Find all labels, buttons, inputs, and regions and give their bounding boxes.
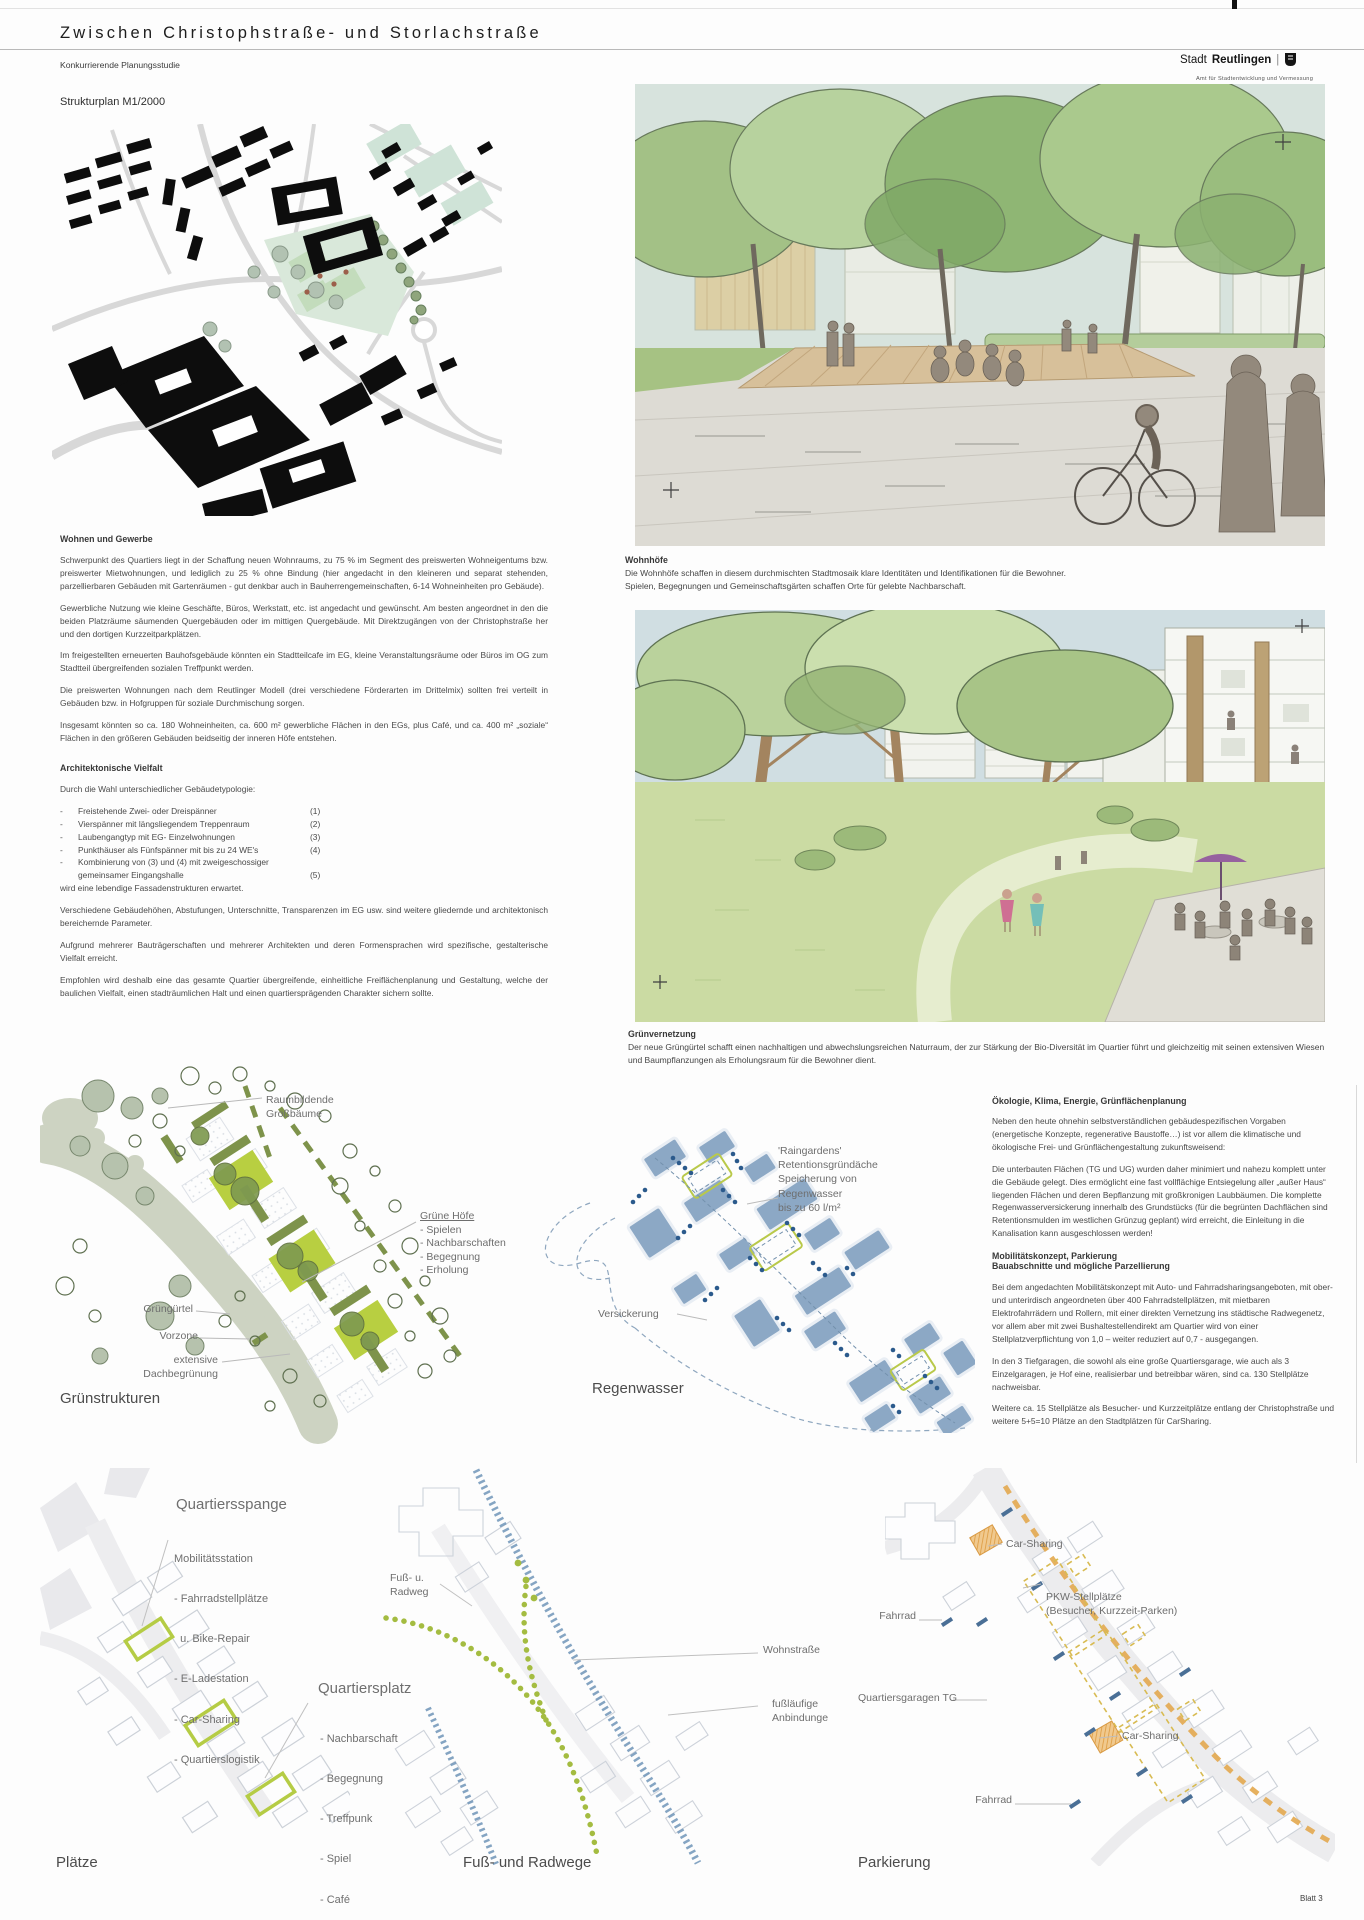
- logo-separator: |: [1276, 54, 1279, 66]
- typology-outro: wird eine lebendige Fassadenstrukturen e…: [60, 882, 548, 895]
- paragraph: Im freigestellten erneuerten Bauhofsgebä…: [60, 649, 548, 675]
- wege-title: Fuß- und Radwege: [463, 1854, 591, 1871]
- paragraph: Empfohlen wird deshalb eine das gesamte …: [60, 974, 548, 1000]
- section-heading-oekologie: Ökologie, Klima, Energie, Grünflächenpla…: [992, 1096, 1336, 1106]
- city-logo: StadtReutlingen |: [1180, 52, 1297, 67]
- label-carsharing-right: Car-Sharing: [1122, 1730, 1179, 1744]
- quartiersspange-items: Mobilitätsstation - Fahrradstellplätze u…: [174, 1526, 268, 1794]
- label-anbindung: fußläufige Anbindunge: [772, 1698, 828, 1725]
- label-grossbaeume: Raumbildende Großbäume: [266, 1094, 334, 1121]
- top-hairline: [0, 8, 1364, 9]
- text-column-left: Wohnen und Gewerbe Schwerpunkt des Quart…: [60, 534, 548, 1009]
- label-versickerung: Versickerung: [598, 1308, 659, 1322]
- regenwasser-diagram: [495, 1128, 975, 1433]
- paragraph: Schwerpunkt des Quartiers liegt in der S…: [60, 554, 548, 593]
- section-heading-bauabschnitte: Bauabschnitte und mögliche Parzellierung: [992, 1261, 1336, 1271]
- paragraph: In den 3 Tiefgaragen, die sowohl als ein…: [992, 1355, 1336, 1394]
- column-edge-line: [1356, 1085, 1357, 1463]
- caption-line: und Baumpflanzungen als Erholungsraum fü…: [628, 1054, 1338, 1067]
- wohnhoefe-rendering: [635, 84, 1325, 546]
- label-fahrrad-left: Fahrrad: [852, 1610, 916, 1624]
- paragraph: Insgesamt könnten so ca. 180 Wohneinheit…: [60, 719, 548, 745]
- typology-intro: Durch die Wahl unterschiedlicher Gebäude…: [60, 783, 548, 796]
- parkierung-title: Parkierung: [858, 1854, 931, 1871]
- logo-name: Reutlingen: [1212, 54, 1271, 66]
- label-wohnstrasse: Wohnstraße: [763, 1644, 820, 1658]
- gruenstrukturen-diagram: [40, 1056, 480, 1446]
- label-pkw-stellplaetze: PKW-Stellplätze (Besucher, Kurzzeit-Park…: [1046, 1590, 1177, 1618]
- paragraph: Bei dem angedachten Mobilitätskonzept mi…: [992, 1281, 1336, 1346]
- gruenvernetzung-rendering: [635, 610, 1325, 1022]
- regenwasser-title: Regenwasser: [592, 1380, 684, 1397]
- bike-path: [428, 1470, 698, 1864]
- paragraph: Neben den heute ohnehin selbstverständli…: [992, 1115, 1336, 1154]
- label-raingardens: 'Raingardens' Retentionsgründäche Speich…: [778, 1144, 878, 1215]
- typology-row: -Freistehende Zwei- oder Dreispänner(1): [60, 805, 548, 818]
- typology-row: gemeinsamer Eingangshalle(5): [60, 869, 548, 882]
- label-dachbegruenung: extensive Dachbegrünung: [88, 1354, 218, 1381]
- text-column-right: Ökologie, Klima, Energie, Grünflächenpla…: [992, 1096, 1336, 1437]
- caption-title: Wohnhöfe: [625, 554, 1285, 567]
- wohnhoefe-caption: Wohnhöfe Die Wohnhöfe schaffen in diesem…: [625, 554, 1285, 592]
- label-gruenguertel: Grüngürtel: [95, 1303, 193, 1317]
- label-fahrrad-bottom: Fahrrad: [950, 1794, 1012, 1808]
- paragraph: Gewerbliche Nutzung wie kleine Geschäfte…: [60, 602, 548, 641]
- registration-mark: [1232, 0, 1237, 9]
- label-gruene-hoefe: Grüne Höfe - Spielen - Nachbarschaften -…: [420, 1210, 506, 1278]
- gruenvernetzung-caption: Grünvernetzung Der neue Grüngürtel schaf…: [628, 1028, 1338, 1066]
- label-fussradweg: Fuß- u. Radweg: [390, 1572, 429, 1599]
- page-subtitle: Konkurrierende Planungsstudie: [60, 60, 180, 70]
- label-quartiersgaragen: Quartiersgaragen TG: [858, 1692, 957, 1706]
- section-heading-vielfalt: Architektonische Vielfalt: [60, 763, 548, 773]
- quartiersspange-heading: Quartiersspange: [176, 1496, 287, 1513]
- strukturplan-map-illustration: [52, 124, 502, 516]
- presentation-board: Zwischen Christophstraße- und Storlachst…: [0, 0, 1364, 1920]
- paragraph: Die unterbauten Flächen (TG und UG) wurd…: [992, 1163, 1336, 1240]
- caption-title: Grünvernetzung: [628, 1028, 1338, 1041]
- section-heading-wohnen: Wohnen und Gewerbe: [60, 534, 548, 544]
- paragraph: Weitere ca. 15 Stellplätze als Besucher-…: [992, 1402, 1336, 1428]
- logo-department: Amt für Stadtentwicklung und Vermessung: [1196, 76, 1313, 82]
- section-heading-mobilitaet: Mobilitätskonzept, Parkierung: [992, 1251, 1336, 1261]
- wege-diagram: [368, 1468, 760, 1866]
- label-vorzone: Vorzone: [128, 1330, 198, 1344]
- caption-line: Der neue Grüngürtel schafft einen nachha…: [628, 1041, 1338, 1054]
- header-rule: [0, 49, 1364, 50]
- paragraph: Die preiswerten Wohnungen nach dem Reutl…: [60, 684, 548, 710]
- gruenstrukturen-title: Grünstrukturen: [60, 1390, 160, 1407]
- typology-row: -Kombinierung von (3) und (4) mit zweige…: [60, 856, 548, 869]
- strukturplan-title: Strukturplan M1/2000: [60, 96, 165, 108]
- caption-line: Die Wohnhöfe schaffen in diesem durchmis…: [625, 567, 1285, 580]
- paragraph: Aufgrund mehrerer Bauträgerschaften und …: [60, 939, 548, 965]
- typology-row: -Vierspänner mit längsliegendem Treppenr…: [60, 818, 548, 831]
- typology-row: -Punkthäuser als Fünfspänner mit bis zu …: [60, 844, 548, 857]
- typology-row: -Laubengangtyp mit EG- Einzelwohnungen(3…: [60, 831, 548, 844]
- plaetze-title: Plätze: [56, 1854, 98, 1871]
- page-title: Zwischen Christophstraße- und Storlachst…: [60, 24, 542, 43]
- label-carsharing-top: Car-Sharing: [1006, 1538, 1063, 1552]
- paragraph: Verschiedene Gebäudehöhen, Abstufungen, …: [60, 904, 548, 930]
- caption-line: Spielen, Begegnungen und Gemeinschaftsgä…: [625, 580, 1285, 593]
- reutlingen-crest-icon: [1284, 52, 1297, 67]
- logo-prefix: Stadt: [1180, 54, 1207, 66]
- sheet-number: Blatt 3: [1300, 1894, 1323, 1903]
